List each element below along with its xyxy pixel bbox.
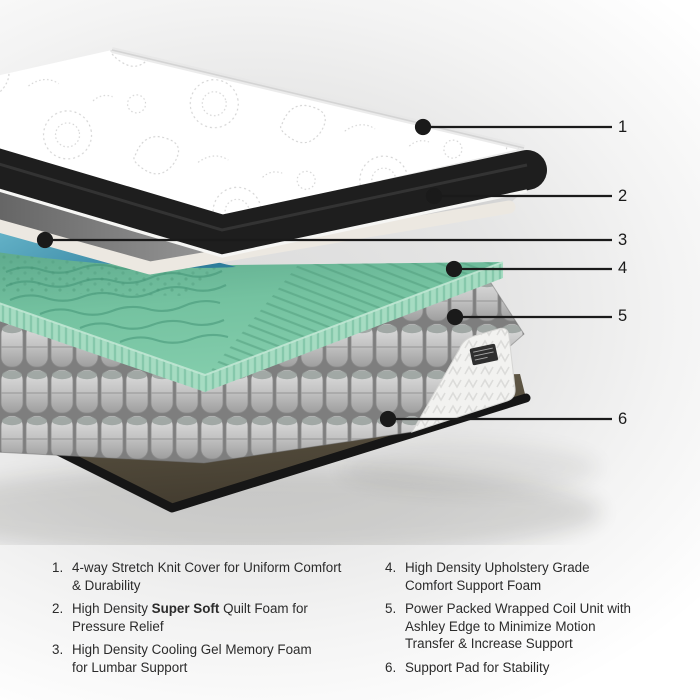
legend-column-left: 1. 4-way Stretch Knit Cover for Uniform … — [52, 559, 372, 683]
legend-item-text: High Density Upholstery Grade Comfort Su… — [405, 559, 590, 594]
legend-item-text: 4-way Stretch Knit Cover for Uniform Com… — [72, 559, 341, 594]
legend-item-number: 1. — [52, 559, 72, 594]
legend-item-4: 4. High Density Upholstery Grade Comfort… — [385, 559, 675, 594]
callout-number-4: 4 — [618, 259, 640, 278]
legend-item-2: 2. High Density Super Soft Quilt Foam fo… — [52, 600, 372, 635]
product-diagram-page: 1 2 3 4 5 6 1. 4-way Stretch Knit Cover … — [0, 0, 700, 700]
callout-number-2: 2 — [618, 187, 640, 206]
legend-item-number: 3. — [52, 641, 72, 676]
legend-column-right: 4. High Density Upholstery Grade Comfort… — [385, 559, 675, 683]
legend-item-1: 1. 4-way Stretch Knit Cover for Uniform … — [52, 559, 372, 594]
legend-item-number: 6. — [385, 659, 405, 677]
legend-item-number: 2. — [52, 600, 72, 635]
callout-number-3: 3 — [618, 231, 640, 250]
callout-number-5: 5 — [618, 307, 640, 326]
legend-item-number: 5. — [385, 600, 405, 653]
legend-item-text: High Density Cooling Gel Memory Foam for… — [72, 641, 312, 676]
legend-item-5: 5. Power Packed Wrapped Coil Unit with A… — [385, 600, 675, 653]
legend-item-text: Support Pad for Stability — [405, 659, 549, 677]
legend-item-number: 4. — [385, 559, 405, 594]
legend-item-text: Power Packed Wrapped Coil Unit with Ashl… — [405, 600, 631, 653]
callout-number-1: 1 — [618, 118, 640, 137]
legend-item-3: 3. High Density Cooling Gel Memory Foam … — [52, 641, 372, 676]
legend-item-6: 6. Support Pad for Stability — [385, 659, 675, 677]
mattress-exploded-diagram — [0, 0, 700, 545]
legend-item-text: High Density Super Soft Quilt Foam for P… — [72, 600, 308, 635]
callout-number-6: 6 — [618, 410, 640, 429]
